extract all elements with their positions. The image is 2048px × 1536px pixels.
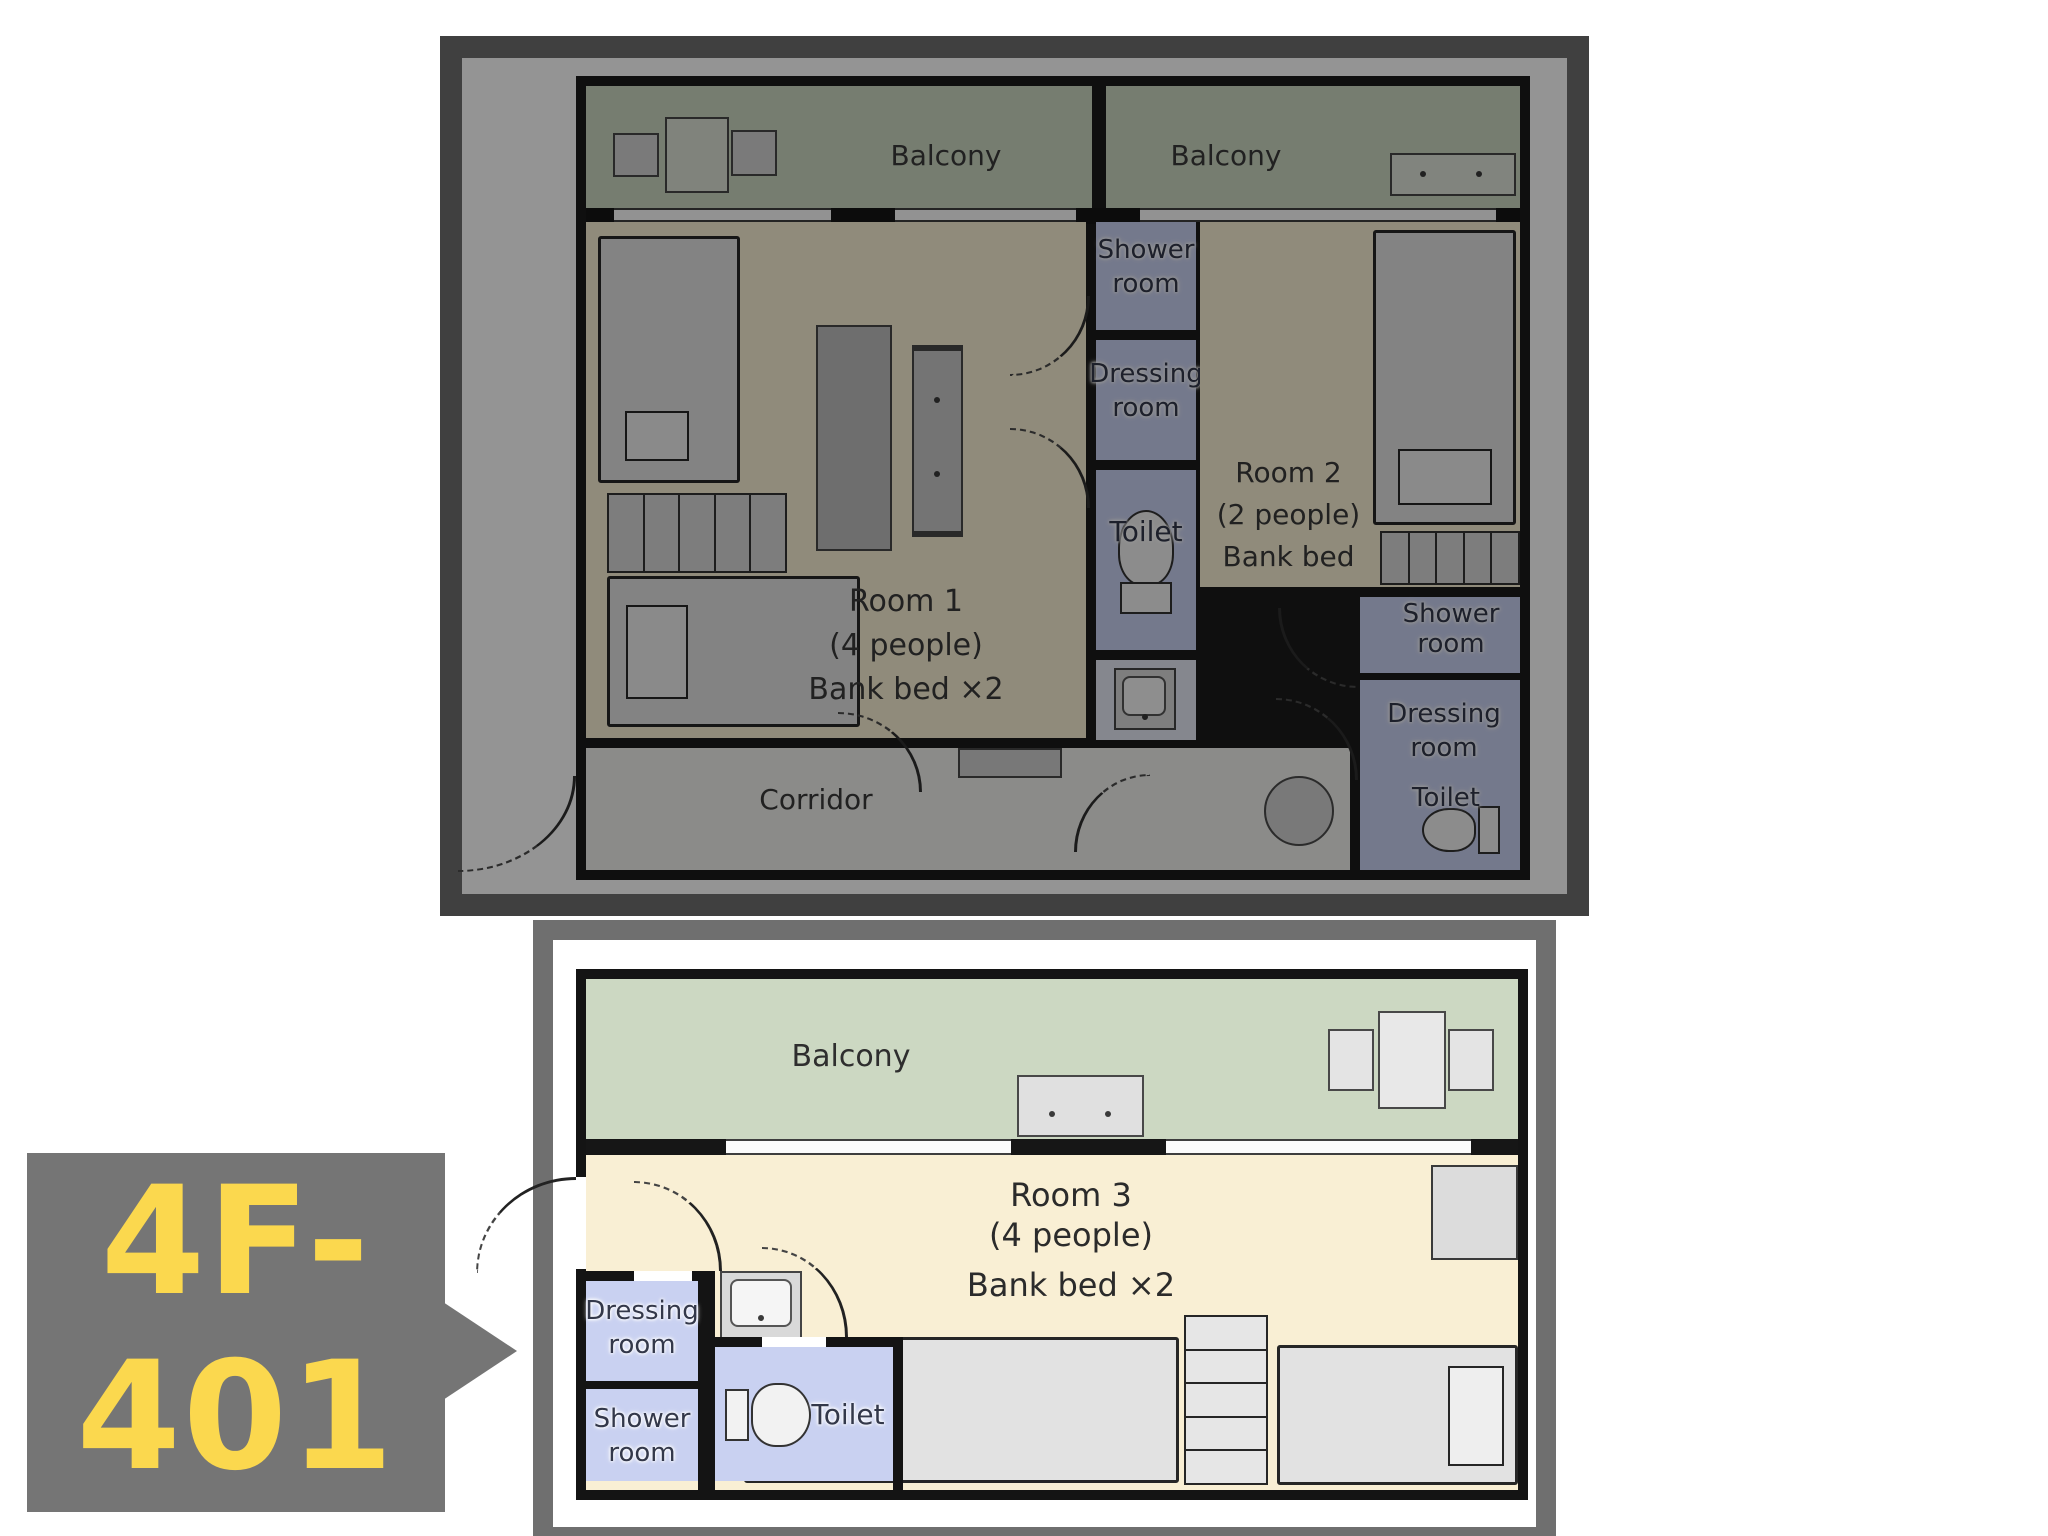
- lower-floorplan: Balcony: [576, 969, 1528, 1500]
- chair-icon: [1448, 1029, 1494, 1091]
- ladder-icon: [1184, 1315, 1268, 1485]
- room-number-callout: 4F- 401: [27, 1153, 445, 1512]
- door-arc: [476, 1177, 576, 1273]
- planter-dot: [1105, 1111, 1111, 1117]
- label-line: room: [572, 1437, 712, 1471]
- interior-wall: [893, 1347, 903, 1490]
- label-line: Dressing: [572, 1295, 712, 1329]
- lower-balcony: Balcony: [586, 979, 1518, 1139]
- lower-shower-room: Shower room: [586, 1389, 698, 1481]
- interior-wall: [586, 1381, 698, 1389]
- callout-line-2: 401: [76, 1342, 395, 1492]
- label-line: Bank bed ×2: [861, 1265, 1281, 1305]
- lower-shower-label: Shower room: [572, 1403, 712, 1471]
- label-line: (4 people): [861, 1215, 1281, 1255]
- chair-icon: [1328, 1029, 1374, 1091]
- door-opening: [634, 1271, 692, 1281]
- pillow-icon: [1448, 1366, 1504, 1466]
- lower-toilet-label: Toilet: [803, 1397, 893, 1433]
- planter-dot: [1049, 1111, 1055, 1117]
- toilet-icon: [751, 1383, 811, 1447]
- label-line: Room 3: [861, 1175, 1281, 1215]
- toilet-tank-icon: [725, 1389, 749, 1441]
- floorplan-page: Balcony Balcony: [0, 0, 2048, 1536]
- door-opening: [762, 1337, 826, 1347]
- bed-icon: [1277, 1345, 1518, 1485]
- lower-toilet-room: Toilet: [715, 1347, 893, 1481]
- lower-window-band: [586, 1139, 1518, 1155]
- cabinet-icon: [1431, 1165, 1518, 1260]
- label-line: room: [572, 1329, 712, 1363]
- room3-label: Room 3 (4 people) Bank bed ×2: [861, 1175, 1281, 1305]
- lower-dressing-room: Dressing room: [586, 1281, 698, 1381]
- upper-dim-overlay: [440, 36, 1589, 916]
- callout-line-1: 4F-: [101, 1167, 371, 1317]
- table-icon: [1378, 1011, 1446, 1109]
- lower-dressing-label: Dressing room: [572, 1295, 712, 1363]
- callout-pointer-icon: [443, 1302, 517, 1400]
- door-opening: [576, 1177, 586, 1269]
- label-line: Shower: [572, 1403, 712, 1437]
- planter-box-icon: [1017, 1075, 1144, 1137]
- lower-balcony-label: Balcony: [741, 1037, 961, 1076]
